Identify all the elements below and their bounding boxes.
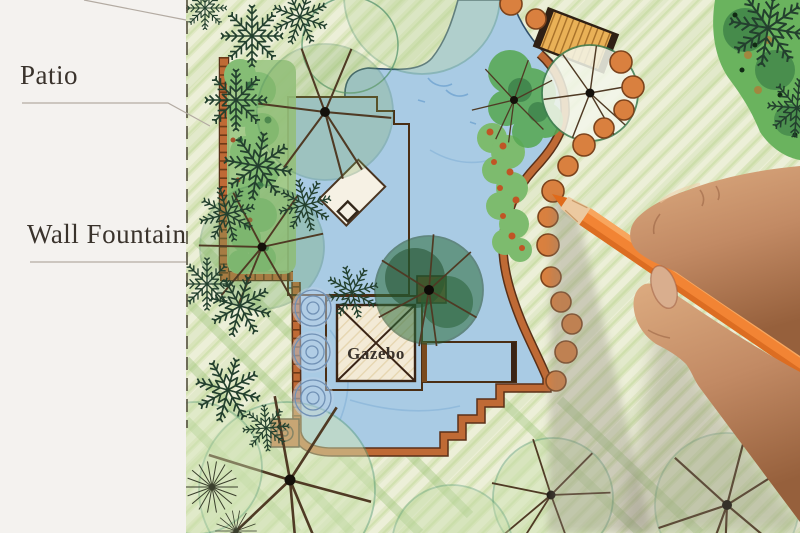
patio-label: Patio <box>20 60 78 90</box>
wall-fountain-label: Wall Fountain <box>27 219 187 249</box>
landscape-plan-photo: Gazebo Patio Wall Fountain <box>0 0 800 533</box>
fountain-ripples <box>291 287 334 419</box>
gazebo-label: Gazebo <box>347 344 405 363</box>
plan-photo-svg: Gazebo Patio Wall Fountain <box>0 0 800 533</box>
